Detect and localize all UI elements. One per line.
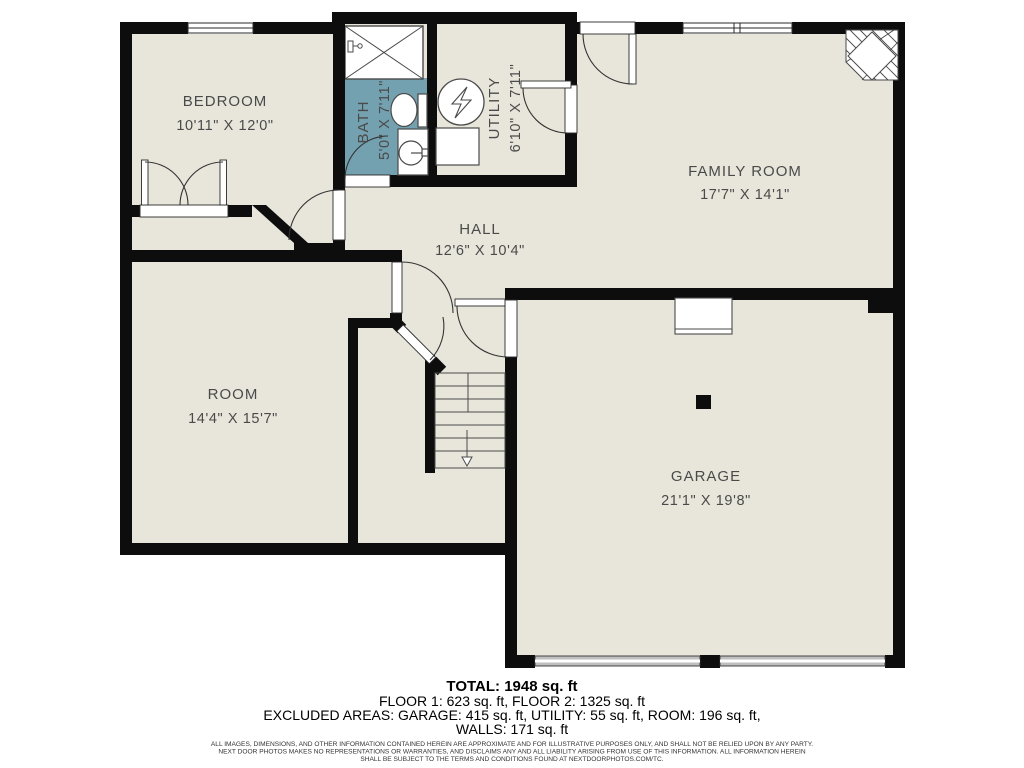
garage-door-right	[720, 656, 885, 666]
summary-walls: WALLS: 171 sq. ft	[456, 721, 568, 737]
bath-name: BATH	[355, 101, 372, 144]
washer-fixture	[436, 128, 479, 165]
disclaimer-line-3: SHALL BE SUBJECT TO THE TERMS AND CONDIT…	[360, 756, 663, 763]
floor-plan-page: BEDROOM 10'11" X 12'0" BATH 5'0" X 7'11"…	[0, 0, 1024, 768]
garage-dims: 21'1" X 19'8"	[661, 493, 751, 509]
room-dims: 14'4" X 15'7"	[188, 411, 278, 427]
bath-dims: 5'0" X 7'11"	[377, 80, 393, 160]
hall-dims: 12'6" X 10'4"	[435, 243, 525, 259]
family-room-dims: 17'7" X 14'1"	[700, 187, 790, 203]
floor-plan: BEDROOM 10'11" X 12'0" BATH 5'0" X 7'11"…	[0, 0, 1024, 768]
bedroom-dims: 10'11" X 12'0"	[176, 118, 273, 134]
garage-post	[696, 395, 711, 409]
disclaimer-line-1: ALL IMAGES, DIMENSIONS, AND OTHER INFORM…	[211, 741, 813, 748]
garage-name: GARAGE	[671, 468, 741, 485]
disclaimer-line-2: NEXT DOOR PHOTOS MAKES NO REPRESENTATION…	[218, 749, 806, 756]
water-heater-fixture	[438, 79, 484, 125]
room-name: ROOM	[208, 386, 259, 403]
garage-storage-fixture	[675, 298, 732, 334]
utility-name: UTILITY	[486, 77, 503, 140]
toilet-fixture	[391, 94, 427, 128]
hall-name: HALL	[459, 221, 501, 238]
utility-dims: 6'10" X 7'11"	[508, 64, 524, 153]
bedroom-name: BEDROOM	[183, 93, 268, 110]
garage-door-left	[535, 656, 700, 666]
family-room-window	[683, 23, 792, 33]
summary-block: TOTAL: 1948 sq. ft FLOOR 1: 623 sq. ft, …	[211, 678, 813, 763]
sink-fixture	[398, 129, 428, 175]
family-room-name: FAMILY ROOM	[688, 163, 802, 180]
bedroom-window	[188, 23, 253, 33]
